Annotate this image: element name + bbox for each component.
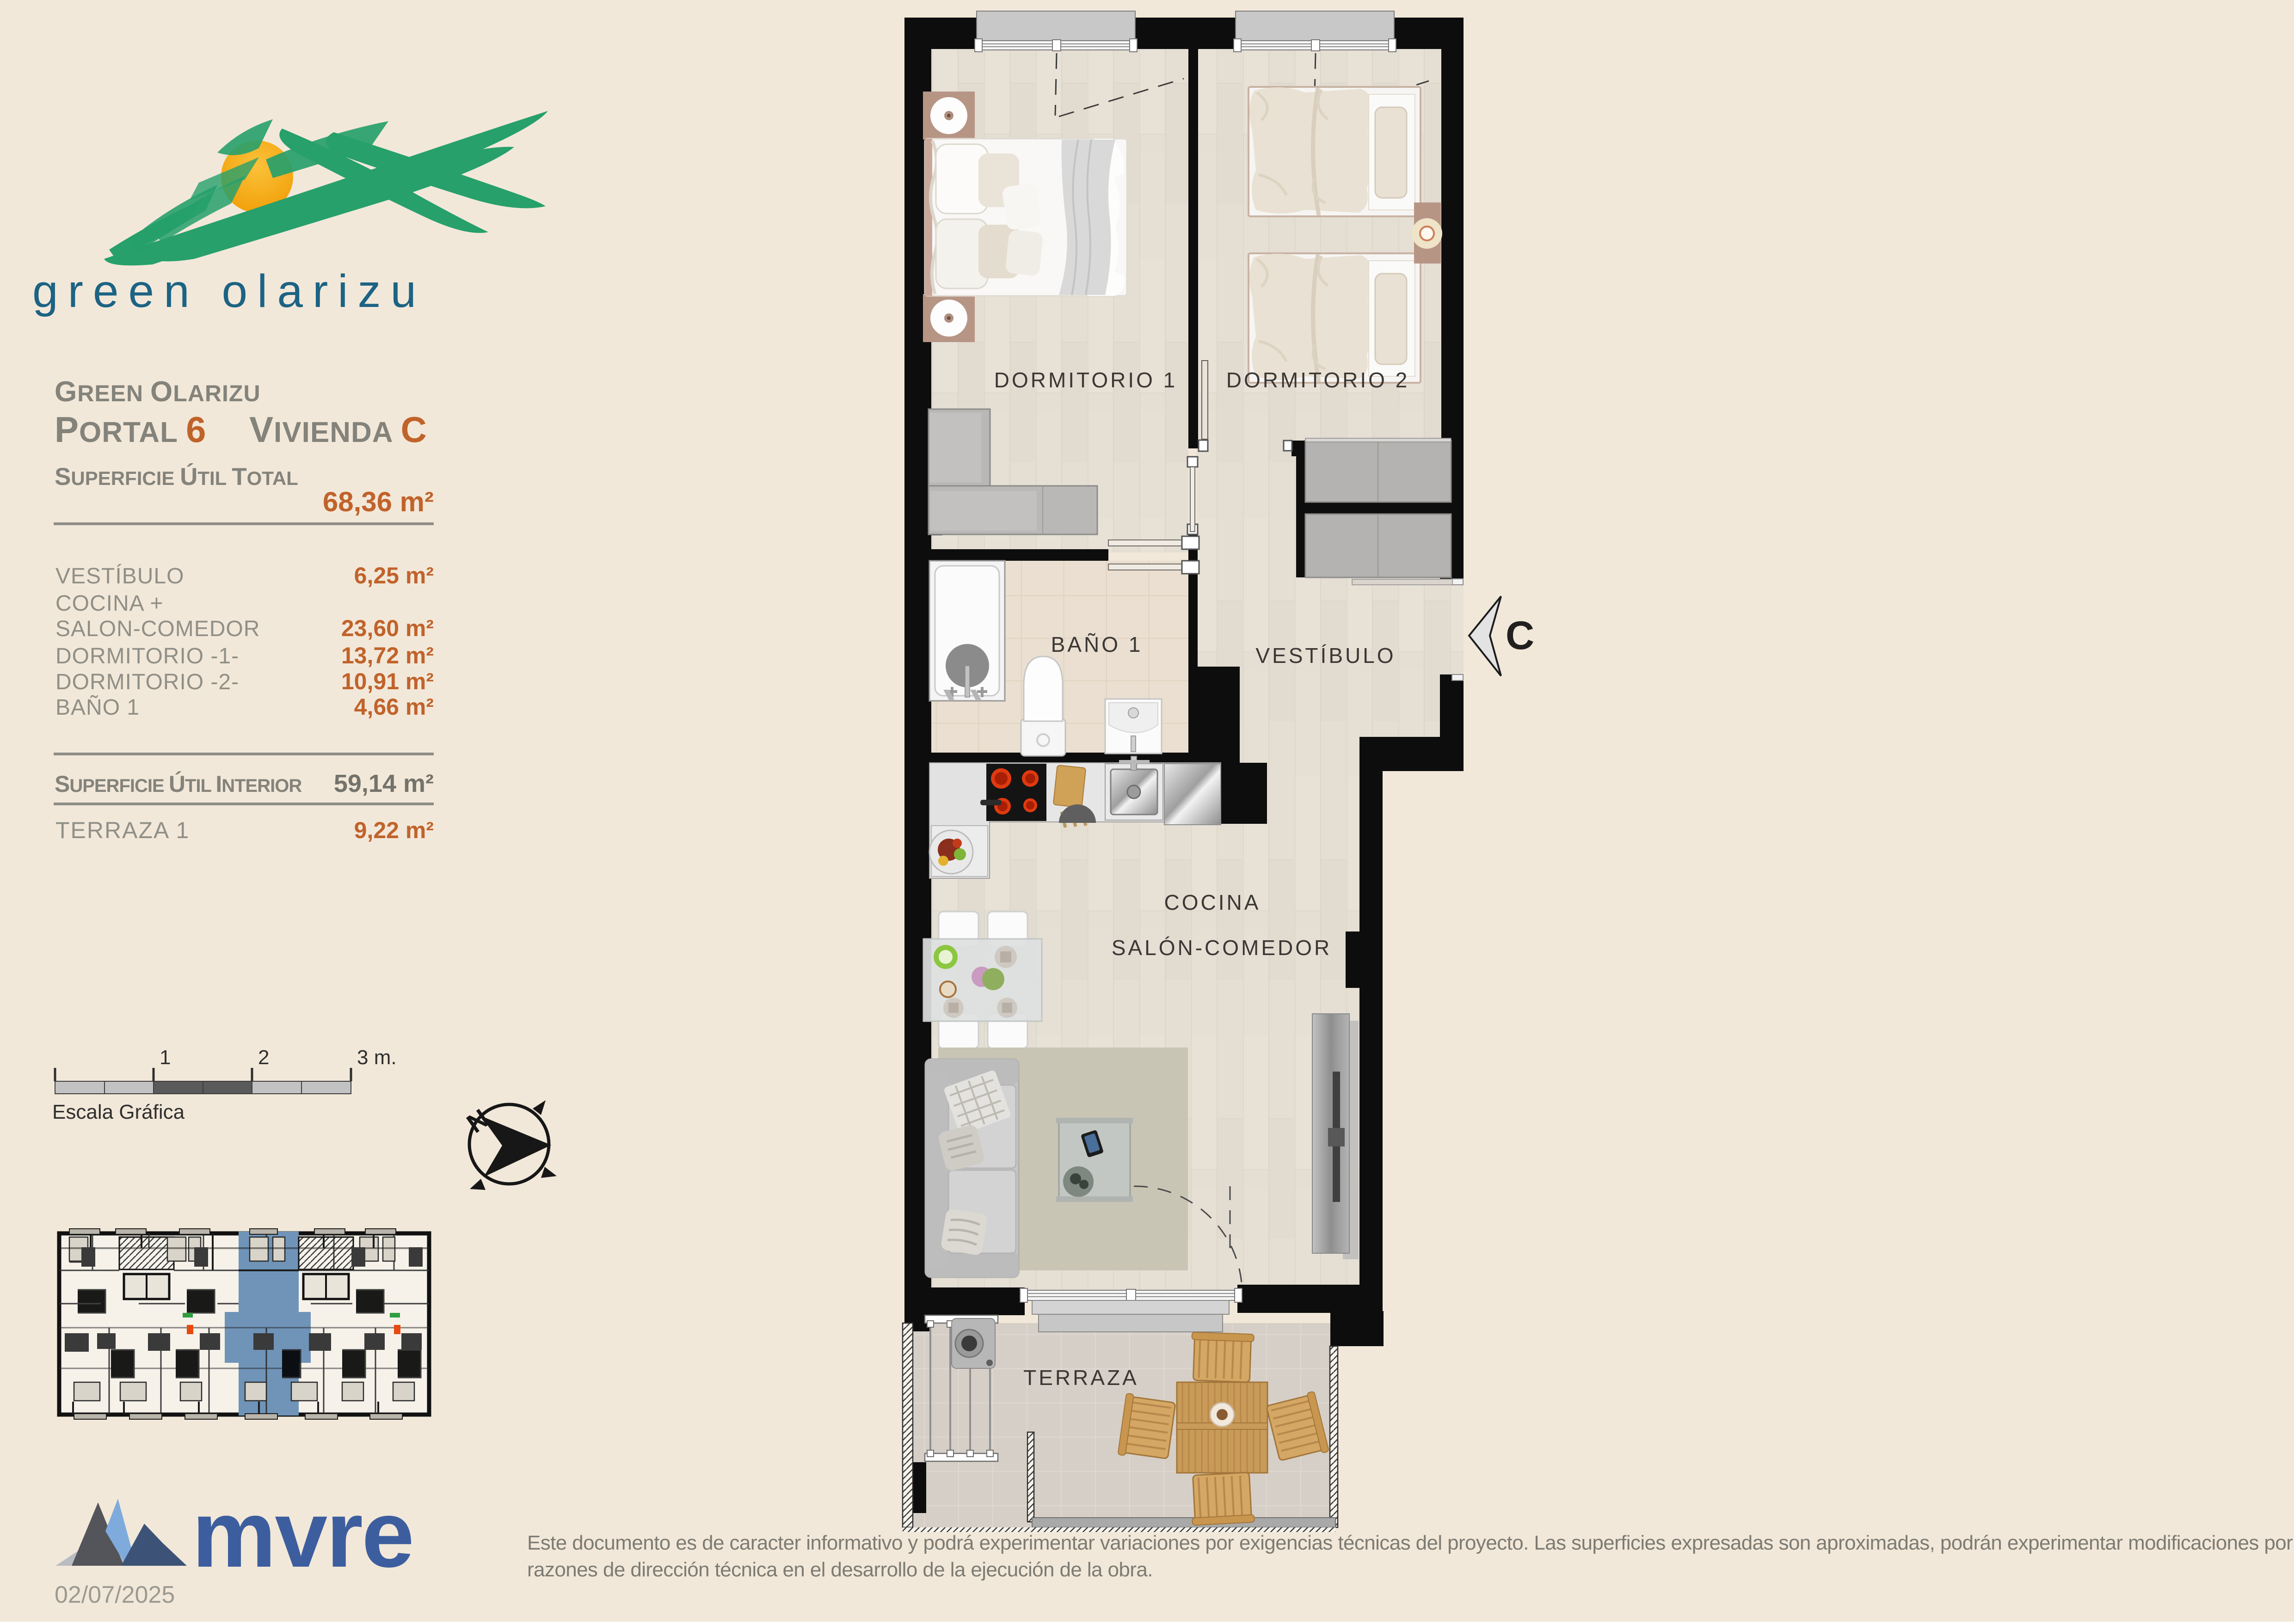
svg-text:SALON-COMEDOR: SALON-COMEDOR [55,617,260,641]
svg-text:VESTÍBULO: VESTÍBULO [1255,643,1396,668]
svg-text:02/07/2025: 02/07/2025 [55,1581,175,1608]
svg-text:DORMITORIO 1: DORMITORIO 1 [994,368,1178,392]
svg-text:razones de dirección técnica e: razones de dirección técnica en el desar… [527,1558,1153,1581]
svg-text:mvre: mvre [192,1481,413,1587]
svg-text:13,72 m²: 13,72 m² [341,643,434,668]
svg-text:TERRAZA: TERRAZA [1023,1366,1139,1390]
svg-text:Escala Gráfica: Escala Gráfica [52,1101,185,1123]
svg-text:4,66 m²: 4,66 m² [354,694,434,720]
svg-text:1: 1 [160,1046,171,1069]
svg-text:Este documento es de caracter: Este documento es de caracter informativ… [527,1532,2293,1554]
svg-text:23,60 m²: 23,60 m² [341,615,434,641]
svg-text:SALÓN-COMEDOR: SALÓN-COMEDOR [1112,936,1332,960]
svg-text:COCINA: COCINA [1164,890,1261,914]
svg-text:TERRAZA 1: TERRAZA 1 [55,817,190,843]
svg-text:68,36 m²: 68,36 m² [323,486,434,517]
svg-text:DORMITORIO 2: DORMITORIO 2 [1226,368,1410,392]
svg-text:VESTÍBULO: VESTÍBULO [55,564,184,588]
svg-text:C: C [1506,613,1534,658]
svg-text:DORMITORIO -1-: DORMITORIO -1- [55,644,239,668]
svg-text:COCINA +: COCINA + [55,591,163,616]
svg-text:6,25 m²: 6,25 m² [354,563,434,588]
svg-text:BAÑO 1: BAÑO 1 [1051,632,1143,656]
svg-text:green olarizu: green olarizu [32,265,426,317]
svg-text:59,14 m²: 59,14 m² [334,770,434,797]
svg-text:2: 2 [258,1046,269,1069]
svg-text:DORMITORIO -2-: DORMITORIO -2- [55,670,239,694]
svg-text:3 m.: 3 m. [357,1046,397,1069]
svg-text:9,22 m²: 9,22 m² [354,817,434,843]
svg-text:BAÑO 1: BAÑO 1 [55,695,140,720]
svg-text:GREEN OLARIZU: GREEN OLARIZU [55,376,261,408]
svg-text:10,91 m²: 10,91 m² [341,668,434,694]
